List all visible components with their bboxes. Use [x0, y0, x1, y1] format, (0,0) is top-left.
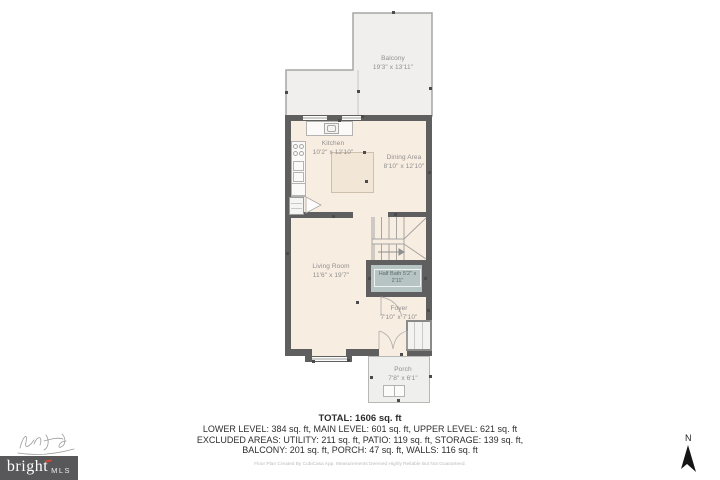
kitchen-dims: 10'2" x 12'10" [300, 149, 366, 158]
balcony-dims: 19'3" x 13'11" [353, 64, 433, 73]
kitchen-name: Kitchen [322, 140, 344, 147]
dimension-marker [286, 252, 289, 255]
counter-cabinet [293, 172, 304, 182]
kitchen-label: Kitchen 10'2" x 12'10" [300, 140, 366, 158]
dimension-marker [338, 119, 341, 122]
dimension-marker [429, 375, 432, 378]
summary-total: TOTAL: 1606 sq. ft [0, 413, 720, 424]
balcony-label: Balcony 19'3" x 13'11" [353, 55, 433, 73]
porch-name: Porch [394, 366, 411, 373]
dimension-marker [400, 353, 403, 356]
living-room-label: Living Room 11'6" x 19'7" [298, 263, 364, 281]
porch-step-divider [394, 385, 395, 397]
counter-cabinet [293, 161, 304, 171]
stove-burner [293, 151, 298, 156]
dining-area-dims: 8'10" x 12'10" [374, 163, 434, 172]
summary-levels: LOWER LEVEL: 384 sq. ft, MAIN LEVEL: 601… [0, 424, 720, 435]
living-room-name: Living Room [312, 263, 349, 270]
north-arrow-icon [681, 445, 696, 472]
dimension-marker [363, 151, 366, 154]
logo-accent-mark [45, 459, 52, 462]
closet-shelf-line [414, 322, 415, 349]
logo-text-mls: MLS [51, 466, 71, 475]
dimension-marker [357, 90, 360, 93]
pantry-shelf-line [291, 208, 302, 209]
summary-excluded-2: BALCONY: 201 sq. ft, PORCH: 47 sq. ft, W… [0, 445, 720, 456]
foyer-name: Foyer [390, 305, 407, 312]
dimension-marker [427, 309, 430, 312]
dimension-marker [428, 171, 431, 174]
north-compass: N [674, 430, 706, 474]
porch-dims: 7'8" x 6'1" [373, 375, 433, 384]
dimension-marker [356, 301, 359, 304]
dimension-marker [312, 360, 315, 363]
north-label: N [685, 433, 692, 443]
dimension-marker [394, 213, 397, 216]
summary-disclaimer: Floor Plan Created By CubiCasa App. Meas… [0, 462, 720, 467]
kitchen-island [331, 152, 374, 193]
balcony-name: Balcony [381, 55, 405, 62]
dining-area-label: Dining Area 8'10" x 12'10" [374, 154, 434, 172]
foyer-dims: 7'10" x 7'10" [369, 314, 429, 323]
dimension-marker [424, 277, 427, 280]
refrigerator [291, 183, 306, 196]
half-bath-label: Half Bath 5'2" x 2'11" [374, 269, 421, 287]
area-summary: TOTAL: 1606 sq. ft LOWER LEVEL: 384 sq. … [0, 413, 720, 467]
dimension-marker [429, 87, 432, 90]
porch-label: Porch 7'8" x 6'1" [373, 366, 433, 384]
dimension-marker [285, 91, 288, 94]
dimension-marker [332, 215, 335, 218]
dimension-marker [368, 277, 371, 280]
bright-mls-logo: bright MLS [0, 456, 78, 480]
kitchen-pantry [289, 197, 304, 215]
summary-excluded-1: EXCLUDED AREAS: UTILITY: 211 sq. ft, PAT… [0, 435, 720, 446]
living-room-dims: 11'6" x 19'7" [298, 272, 364, 281]
window-kitchen-top [303, 116, 327, 120]
foyer-label: Foyer 7'10" x 7'10" [369, 305, 429, 323]
window-living-bay [312, 357, 347, 361]
closet-shelf-line [422, 322, 423, 349]
stove-burner [293, 144, 298, 149]
dimension-marker [370, 376, 373, 379]
foyer-closet [406, 320, 432, 351]
pantry-shelf-line [291, 203, 302, 204]
balcony-door-opening [342, 116, 361, 120]
agent-signature [14, 428, 78, 458]
dining-area-name: Dining Area [387, 154, 422, 161]
half-bath-name: Half Bath [379, 271, 402, 277]
dimension-marker [392, 11, 395, 14]
dimension-marker [361, 115, 364, 118]
dimension-marker [397, 399, 400, 402]
logo-text-bright: bright [7, 458, 48, 476]
dimension-marker [347, 359, 350, 362]
dimension-marker [365, 180, 368, 183]
kitchen-sink-basin [327, 125, 336, 132]
